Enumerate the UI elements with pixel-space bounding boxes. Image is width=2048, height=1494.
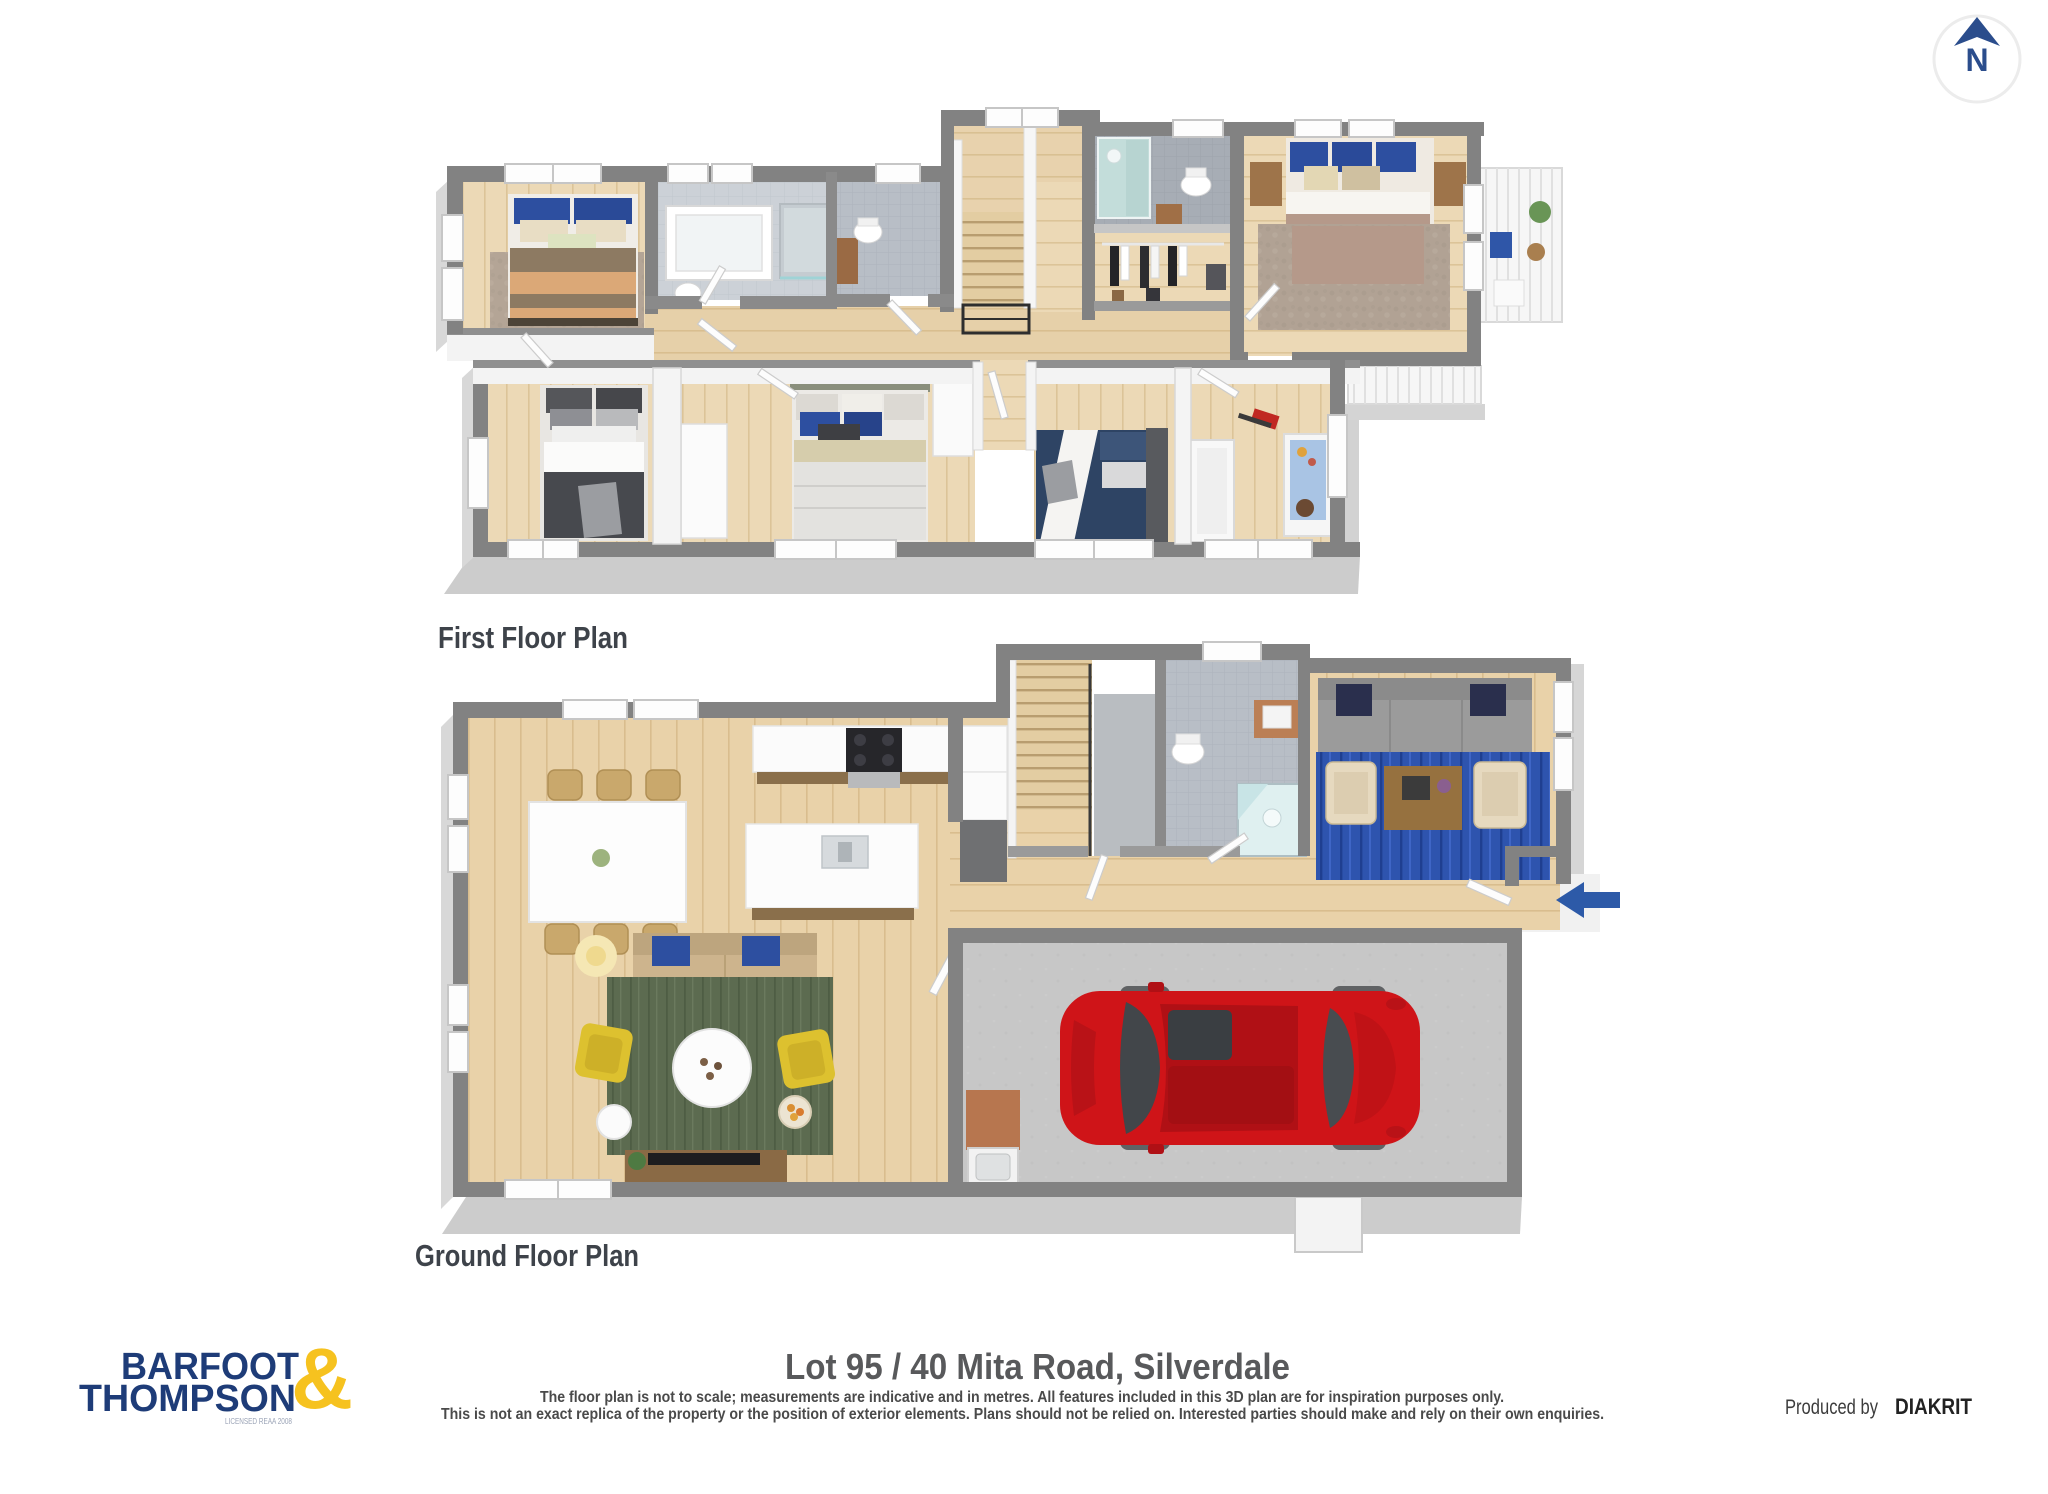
svg-text:Ground Floor Plan: Ground Floor Plan [415,1238,639,1273]
svg-text:&: & [291,1331,353,1427]
svg-text:Lot 95 / 40 Mita Road, Silverd: Lot 95 / 40 Mita Road, Silverdale [785,1346,1290,1387]
svg-text:The floor plan is not to scale: The floor plan is not to scale; measurem… [540,1389,1504,1406]
svg-text:THOMPSON: THOMPSON [79,1378,296,1420]
svg-text:DIAKRIT: DIAKRIT [1895,1394,1972,1419]
svg-text:This is not an exact replica o: This is not an exact replica of the prop… [441,1406,1604,1423]
svg-text:N: N [1965,42,1988,78]
svg-text:LICENSED REAA 2008: LICENSED REAA 2008 [225,1416,292,1426]
svg-text:Produced by: Produced by [1785,1396,1878,1419]
svg-text:First Floor Plan: First Floor Plan [438,620,628,655]
